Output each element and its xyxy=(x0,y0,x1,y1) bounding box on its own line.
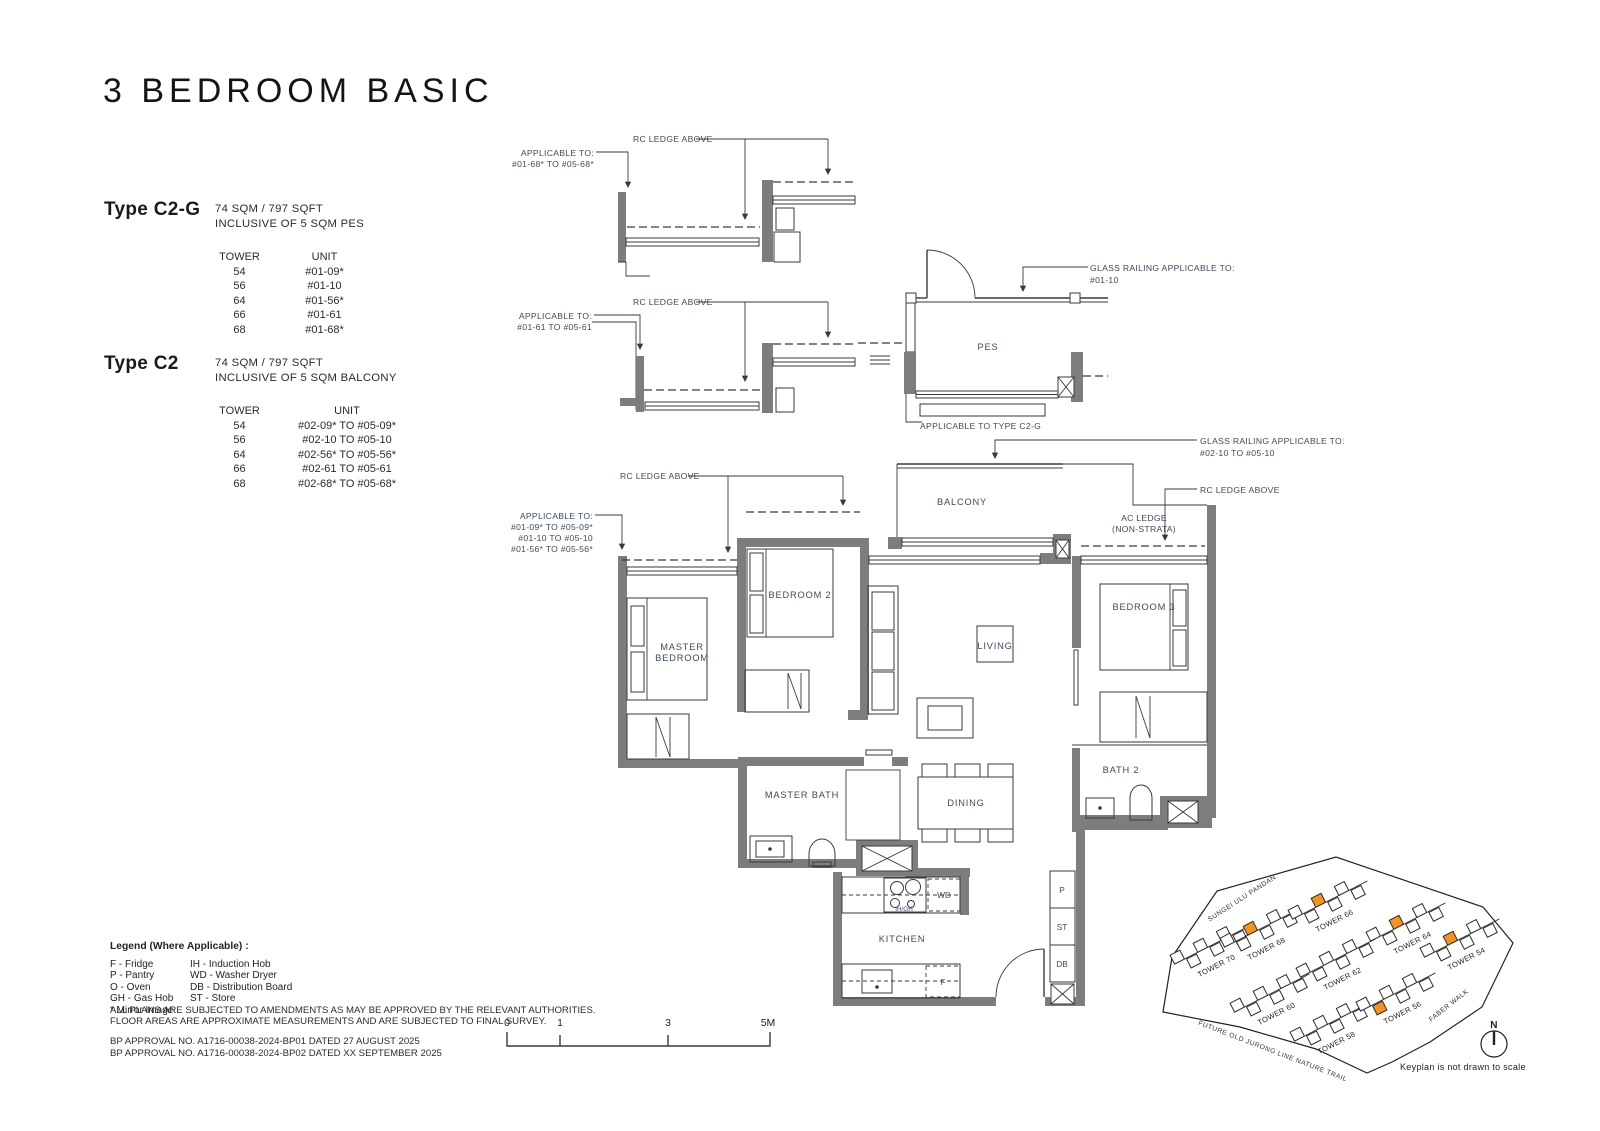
master-bedroom: MASTER BEDROOM xyxy=(627,598,709,759)
glass-railing-note-2: GLASS RAILING APPLICABLE TO: xyxy=(1200,436,1345,446)
shaft-box-foyer xyxy=(1051,984,1074,1004)
detail-section-2: RC LEDGE ABOVE APPLICABLE TO: #01-61 TO … xyxy=(517,297,890,413)
floorplan-page: 3 BEDROOM BASIC Type C2-G 74 SQM / 797 S… xyxy=(0,0,1600,1131)
svg-text:N: N xyxy=(1490,1020,1498,1031)
scale-bar: 0 1 3 5M xyxy=(504,1017,775,1046)
walls xyxy=(618,505,1216,1006)
hob-tag: IH/GH xyxy=(895,906,913,913)
shaft-box-kitchen xyxy=(862,846,912,871)
svg-text:5M: 5M xyxy=(761,1017,776,1029)
svg-text:TOWER 56: TOWER 56 xyxy=(1382,999,1423,1026)
svg-text:#01-61 TO #05-61: #01-61 TO #05-61 xyxy=(517,322,592,332)
applicable-type-c2g-note: APPLICABLE TO TYPE C2-G xyxy=(920,421,1041,431)
glass-railing-note-1: GLASS RAILING APPLICABLE TO: xyxy=(1090,263,1235,273)
svg-text:TOWER 60: TOWER 60 xyxy=(1256,1000,1297,1027)
svg-text:#01-10: #01-10 xyxy=(1090,275,1119,285)
ac-ledge-label: AC LEDGE xyxy=(1121,513,1167,523)
svg-text:TOWER 54: TOWER 54 xyxy=(1446,945,1487,972)
main-plan-annotations: RC LEDGE ABOVE APPLICABLE TO: #01-09* TO… xyxy=(511,436,1345,554)
store-tag: ST xyxy=(1057,922,1068,932)
svg-text:#01-10 TO #05-10: #01-10 TO #05-10 xyxy=(518,533,593,543)
svg-text:#02-10 TO #05-10: #02-10 TO #05-10 xyxy=(1200,448,1275,458)
living-room: LIVING xyxy=(868,586,1013,738)
rc-ledge-note-4: RC LEDGE ABOVE xyxy=(1200,485,1280,495)
applicable-note-2: APPLICABLE TO: xyxy=(519,311,592,321)
main-unit-plan: MASTER BEDROOM BEDROOM 2 xyxy=(511,436,1345,1006)
svg-text:#01-09* TO #05-09*: #01-09* TO #05-09* xyxy=(511,522,593,532)
master-bath: MASTER BATH xyxy=(750,750,912,871)
svg-text:0: 0 xyxy=(504,1017,510,1029)
pantry-tag: P xyxy=(1059,885,1065,895)
room-label-kitchen: KITCHEN xyxy=(879,934,925,944)
room-label-bedroom3: BEDROOM 3 xyxy=(1113,602,1176,612)
keyplan-tower-66: TOWER 66 xyxy=(1288,872,1379,941)
svg-text:1: 1 xyxy=(557,1017,563,1029)
svg-text:#01-56* TO #05-56*: #01-56* TO #05-56* xyxy=(511,544,593,554)
shaft-box-bath2 xyxy=(1168,801,1198,823)
svg-text:TOWER 66: TOWER 66 xyxy=(1314,907,1355,934)
bedroom-3: BEDROOM 3 xyxy=(1074,584,1207,742)
svg-text:BEDROOM: BEDROOM xyxy=(655,653,709,663)
bath-2: BATH 2 xyxy=(1086,765,1198,823)
pes-detail: PES GLASS RAILING APPLICABLE TO: #01-10 … xyxy=(858,250,1235,431)
keyplan-tower-62: TOWER 62 xyxy=(1296,930,1387,999)
room-label-balcony: BALCONY xyxy=(937,497,987,507)
room-label-bath2: BATH 2 xyxy=(1103,765,1140,775)
bedroom-2: BEDROOM 2 xyxy=(745,549,833,712)
room-label-pes: PES xyxy=(977,342,998,352)
detail-section-1: RC LEDGE ABOVE APPLICABLE TO: #01-68* TO… xyxy=(512,134,855,276)
street-faber-walk: FABER WALK xyxy=(1428,988,1470,1023)
room-label-living: LIVING xyxy=(977,641,1012,651)
floorplan-drawing: RC LEDGE ABOVE APPLICABLE TO: #01-68* TO… xyxy=(0,0,1600,1131)
db-tag: DB xyxy=(1056,959,1068,969)
shaft-box-pes xyxy=(1058,377,1074,397)
svg-text:TOWER 58: TOWER 58 xyxy=(1316,1029,1357,1056)
keyplan: TOWER 70 TOWER 68 TOWER 66 xyxy=(1163,857,1526,1083)
fridge-tag: F xyxy=(940,977,945,987)
svg-text:TOWER 62: TOWER 62 xyxy=(1322,965,1363,992)
svg-text:3: 3 xyxy=(665,1017,671,1029)
room-label-master-bedroom: MASTER xyxy=(660,642,704,652)
room-label-dining: DINING xyxy=(947,798,984,808)
svg-text:#01-68* TO #05-68*: #01-68* TO #05-68* xyxy=(512,159,594,169)
keyplan-tower-60: TOWER 60 xyxy=(1230,965,1321,1034)
applicable-note-1: APPLICABLE TO: xyxy=(521,148,594,158)
shaft-box-balcony xyxy=(1056,540,1069,558)
foyer: P ST DB xyxy=(996,871,1075,1004)
room-label-master-bath: MASTER BATH xyxy=(765,790,839,800)
keyplan-tower-56: TOWER 56 xyxy=(1356,964,1447,1033)
applicable-note-3: APPLICABLE TO: xyxy=(520,511,593,521)
svg-text:(NON-STRATA): (NON-STRATA) xyxy=(1112,524,1176,534)
north-arrow: N xyxy=(1481,1020,1507,1057)
dining: DINING xyxy=(918,764,1013,842)
room-label-bedroom2: BEDROOM 2 xyxy=(769,590,832,600)
svg-text:TOWER 70: TOWER 70 xyxy=(1196,952,1237,979)
kitchen: IH/GH WD F KITCHEN xyxy=(842,877,960,998)
washer-dryer-tag: WD xyxy=(937,890,951,900)
rc-ledge-note-3: RC LEDGE ABOVE xyxy=(620,471,700,481)
svg-text:TOWER 68: TOWER 68 xyxy=(1246,935,1287,962)
keyplan-note: Keyplan is not drawn to scale xyxy=(1400,1062,1526,1072)
